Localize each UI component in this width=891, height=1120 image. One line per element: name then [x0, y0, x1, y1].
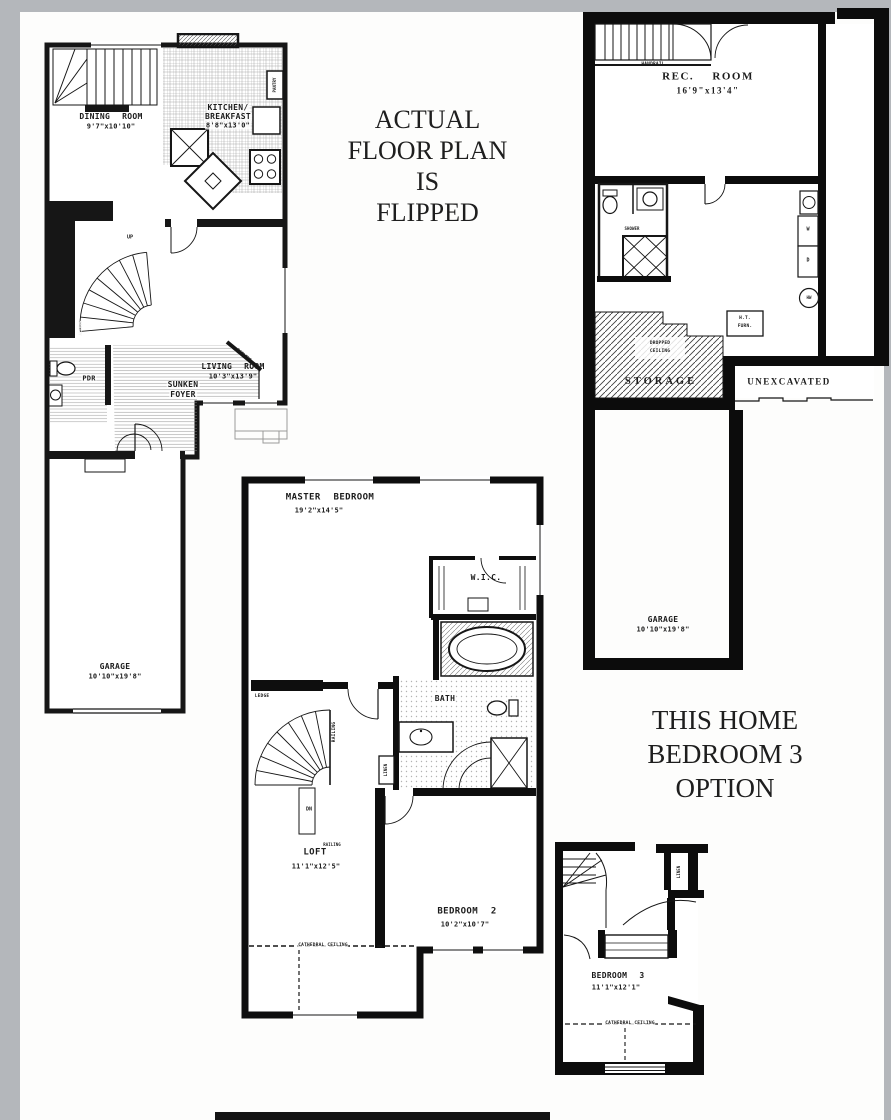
furnace-label-2: FURN.: [738, 325, 753, 330]
bedroom3-option-plan: LINEN BEDROOM 3 11'1"x12'1" CATHEDRAL CE…: [550, 840, 860, 1090]
flipped-note-line2: FLOOR PLAN: [325, 135, 530, 166]
bedroom3-option-note: THIS HOME BEDROOM 3 OPTION: [615, 703, 835, 805]
scan-border-left: [0, 0, 20, 1120]
living-room-dims: 10'3"x13'9": [209, 374, 258, 381]
unexcavated-edge: [735, 398, 873, 401]
storage-label: STORAGE: [625, 377, 697, 388]
loft-bedroom2-wall: [375, 788, 385, 948]
garage-dims: 10'10"x19'8": [89, 674, 142, 681]
basement-garage-label: GARAGE: [648, 616, 679, 624]
loft-dims: 11'1"x12'5": [292, 864, 341, 871]
powder-room: [49, 345, 111, 423]
closet-bifold: [605, 935, 668, 958]
second-floor-plan: MASTER BEDROOM 19'2"x14'5" W.I.C. BATH L…: [235, 470, 550, 1025]
flipped-note-line1: ACTUAL: [325, 104, 530, 135]
basement-plan: HANDRAIL REC. ROOM 16'9"x13'4" SHOWER W …: [575, 8, 891, 680]
master-bedroom-dims: 19'2"x14'5": [295, 508, 344, 515]
stair-down-label: DN: [306, 808, 312, 813]
basement-bathroom: [599, 184, 667, 280]
chimney: [178, 34, 238, 47]
flipped-note-line3: IS: [325, 166, 530, 197]
bedroom3-drawing: [550, 840, 860, 1090]
scanned-floor-plan-sheet: DINING ROOM 9'7"x10'10" KITCHEN/ BREAKFA…: [0, 0, 891, 1120]
bath-label: BATH: [434, 695, 456, 703]
ledge-label: LEDGE: [255, 695, 270, 700]
dryer-label: D: [806, 259, 809, 264]
bedroom2-dims: 10'2"x10'7": [441, 922, 490, 929]
option-note-line2: BEDROOM 3: [615, 737, 835, 771]
cathedral-ceiling-label: CATHEDRAL CEILING: [604, 1022, 655, 1027]
basement-garage-dims: 10'10"x19'8": [637, 627, 690, 634]
toilet: [50, 361, 57, 376]
cathedral-ceiling-label: CATHEDRAL CEILING: [297, 944, 348, 949]
washer-label: W: [806, 228, 809, 233]
loft-label: LOFT: [303, 849, 326, 858]
stair-up-label: UP: [127, 236, 133, 241]
stove: [250, 150, 280, 184]
garage-door: [73, 705, 161, 716]
railing-small-label: RAILING: [323, 843, 341, 847]
rec-room-label: REC. ROOM: [662, 72, 754, 83]
foyer-label-2: FOYER: [169, 391, 197, 399]
foyer-label: SUNKEN: [167, 381, 200, 389]
flipped-note: ACTUAL FLOOR PLAN IS FLIPPED: [325, 104, 530, 228]
living-room-label: LIVING ROOM: [201, 363, 264, 371]
linen-label: LINEN: [677, 866, 681, 879]
dining-room-dims: 9'7"x10'10": [87, 124, 136, 131]
master-bedroom-label: MASTER BEDROOM: [286, 494, 374, 503]
unexcavated-label: UNEXCAVATED: [747, 378, 831, 387]
toilet: [488, 701, 507, 715]
shower-label: SHOWER: [623, 227, 640, 231]
hot-water-label: HW: [806, 296, 811, 300]
bedroom3-label: BEDROOM 3: [591, 972, 644, 980]
kitchen-label: KITCHEN/: [207, 104, 250, 112]
handrail-label: HANDRAIL: [641, 63, 664, 68]
dropped-ceiling-label: DROPPED: [650, 342, 670, 347]
garage-step: [85, 459, 125, 472]
stair-landing-wall: [85, 105, 129, 112]
scan-artifact-bar: [215, 1112, 550, 1120]
furnace-label: H.T.: [739, 317, 751, 322]
bedroom2-wall: [413, 788, 536, 796]
alcove-label: ALCOVE: [79, 320, 83, 335]
basement-stairs: [595, 24, 711, 65]
stair-head-wall: [251, 680, 323, 691]
powder-room-label: PDR: [81, 376, 96, 383]
linen-label: LINEN: [384, 764, 388, 777]
option-note-line1: THIS HOME: [615, 703, 835, 737]
stair-up-straight: [53, 49, 157, 105]
window-opening: [605, 1064, 665, 1073]
dropped-ceiling-label-2: CEILING: [650, 350, 670, 355]
railing-vertical-label: RAILING: [333, 722, 338, 742]
dining-room-label: DINING ROOM: [79, 113, 142, 121]
toilet: [603, 190, 617, 196]
bedroom3-dims: 11'1"x12'1": [592, 985, 641, 992]
vanity: [399, 722, 453, 752]
bedroom2-label: BEDROOM 2: [437, 908, 496, 917]
second-floor-drawing: [235, 470, 550, 1025]
pantry-label: PANTRY: [273, 77, 277, 92]
refrigerator: [253, 107, 280, 134]
front-porch: [235, 409, 287, 443]
wic-label: W.I.C.: [471, 574, 502, 582]
kitchen-dims: 8'8"x13'0": [205, 123, 251, 130]
garage-label: GARAGE: [100, 663, 131, 671]
rec-room-dims: 16'9"x13'4": [677, 87, 740, 96]
option-note-line3: OPTION: [615, 771, 835, 805]
soaking-tub: [431, 614, 536, 680]
basement-drawing: [575, 8, 891, 680]
kitchen-label-2: BREAKFAST: [204, 113, 252, 121]
flipped-note-line4: FLIPPED: [325, 197, 530, 228]
